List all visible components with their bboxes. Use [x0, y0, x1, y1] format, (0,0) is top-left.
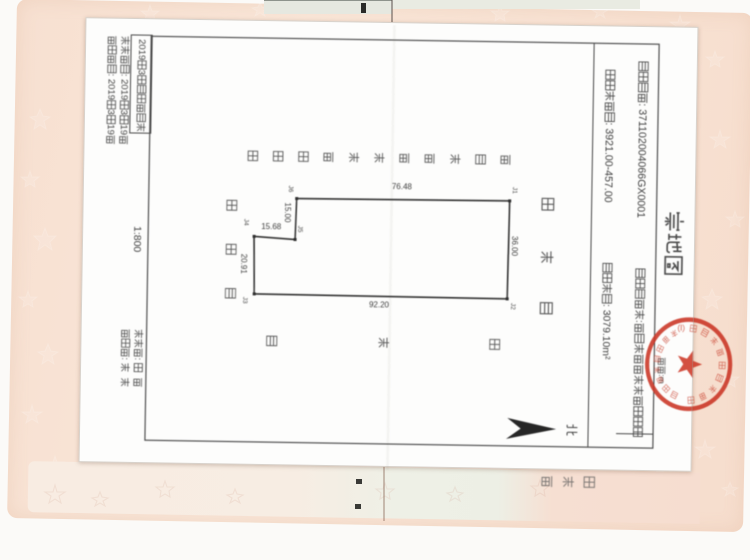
svg-text:3: 3: [105, 109, 116, 114]
svg-text:15.68: 15.68: [261, 222, 282, 231]
svg-text:19: 19: [118, 124, 129, 135]
svg-text:J4: J4: [242, 219, 249, 226]
svg-text:1:800: 1:800: [131, 226, 143, 253]
svg-text:J5: J5: [296, 226, 303, 233]
svg-text:92.20: 92.20: [369, 300, 390, 309]
svg-text:20.91: 20.91: [239, 254, 248, 275]
svg-text:36.00: 36.00: [510, 236, 519, 257]
svg-text::m: :m: [657, 374, 667, 384]
svg-text:: 371102004066GX0001: : 371102004066GX0001: [635, 103, 649, 218]
svg-text:J3: J3: [241, 297, 248, 304]
svg-text:19: 19: [105, 124, 116, 135]
svg-text:J2: J2: [509, 303, 516, 310]
svg-text:3: 3: [118, 110, 129, 115]
svg-text:J1: J1: [511, 187, 518, 194]
svg-text:: 3921.00-457.00: : 3921.00-457.00: [602, 122, 615, 202]
svg-text:: 2019: : 2019: [118, 74, 129, 101]
svg-text:: 3079.10m²: : 3079.10m²: [600, 304, 612, 360]
svg-text:(I): (I): [677, 322, 685, 332]
svg-text::: :: [119, 357, 130, 360]
svg-text:76.48: 76.48: [392, 182, 413, 191]
svg-text:3: 3: [136, 70, 147, 75]
svg-text::: :: [132, 357, 143, 360]
svg-text:: 2019: : 2019: [105, 74, 116, 101]
svg-text:15.00: 15.00: [283, 202, 292, 223]
svg-text::: :: [633, 320, 644, 323]
svg-text:2019: 2019: [136, 39, 147, 60]
svg-text:J6: J6: [287, 185, 294, 192]
